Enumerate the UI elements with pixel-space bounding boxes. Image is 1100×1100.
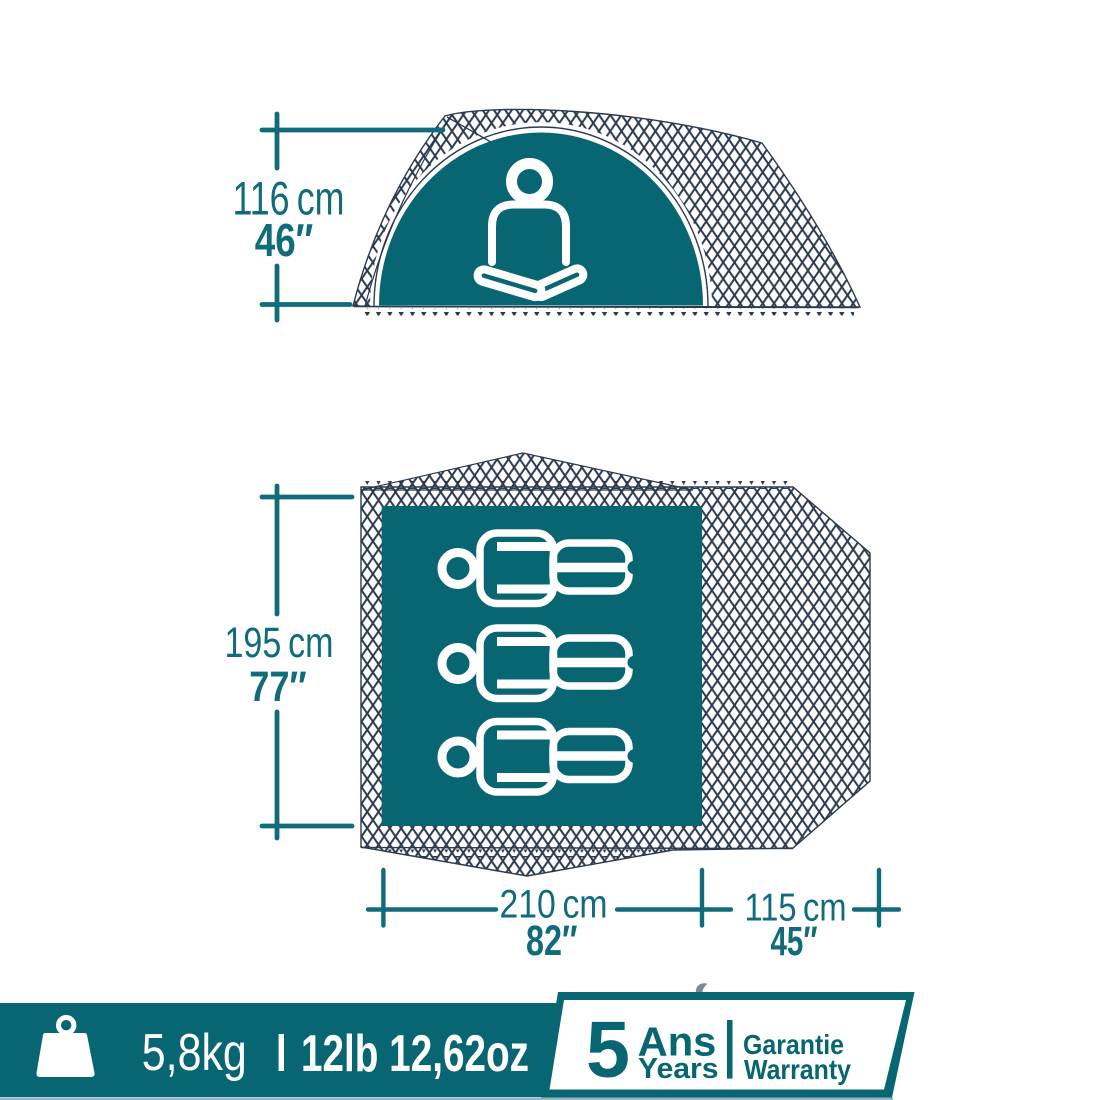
- svg-text:5: 5: [586, 1005, 630, 1094]
- svg-text:195 cm: 195 cm: [225, 619, 334, 667]
- svg-text:12lb 12,62oz: 12lb 12,62oz: [301, 1025, 529, 1083]
- svg-text:46″: 46″: [255, 214, 314, 266]
- svg-text:77″: 77″: [249, 663, 307, 711]
- svg-text:Warranty: Warranty: [744, 1054, 851, 1085]
- svg-text:5,8kg: 5,8kg: [142, 1024, 247, 1082]
- svg-text:45″: 45″: [771, 918, 818, 964]
- svg-text:82″: 82″: [526, 918, 578, 965]
- svg-text:Years: Years: [638, 1053, 719, 1085]
